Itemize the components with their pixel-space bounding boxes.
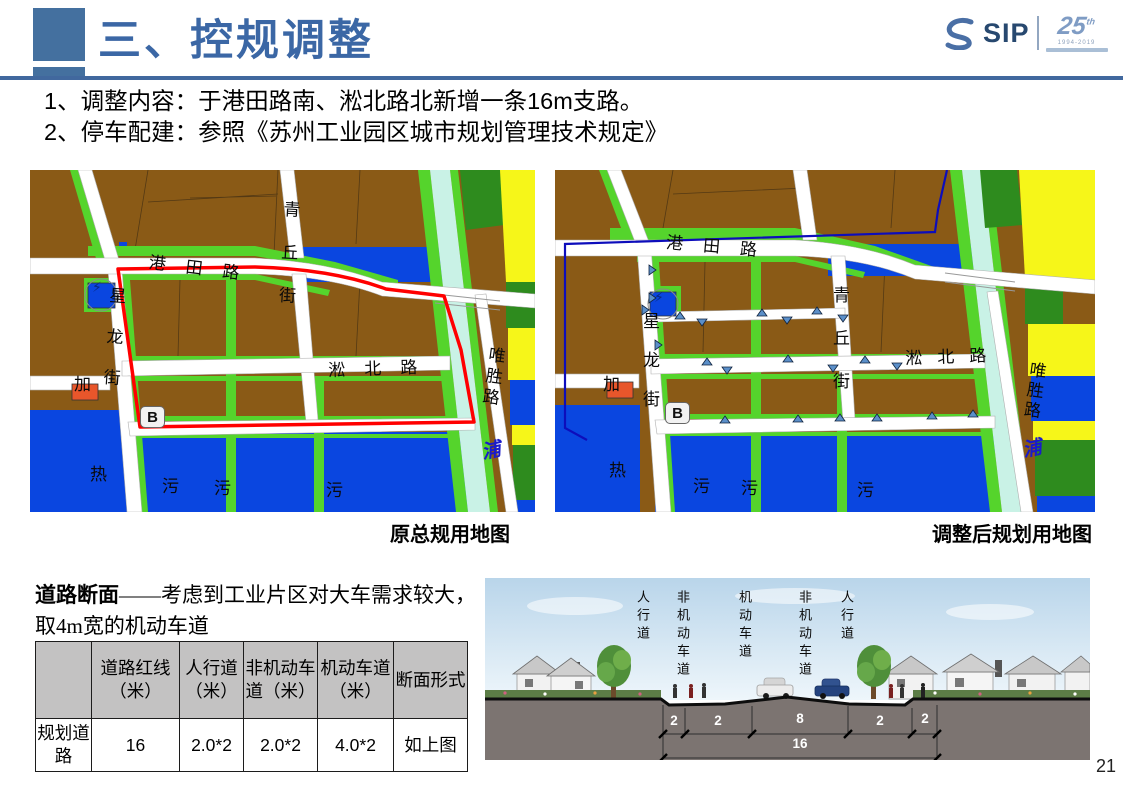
header-divider [0,76,1123,80]
table-row: 规划道路 16 2.0*2 2.0*2 4.0*2 如上图 [36,719,468,772]
anniversary-number: 25 [1056,12,1088,40]
header-sectionform: 断面形式 [394,642,468,719]
road-section-heading: 道路断面——考虑到工业片区对大车需求较大，取4m宽的机动车道 [35,580,487,643]
cell-bikelane: 2.0*2 [244,719,318,772]
logo-divider [1037,16,1039,50]
bullet-1: 1、调整内容：于港田路南、淞北路北新增一条16m支路。 [44,86,668,117]
substation-bolt-icon: ⚡ [654,290,664,304]
area-label-wu-2: 污 [214,480,231,497]
area-label-wu-3: 污 [326,482,343,499]
lane-label-bike-left: 非机动车道 [673,590,692,680]
table-header-row: 道路红线（米） 人行道（米） 非机动车道（米） 机动车道（米） 断面形式 [36,642,468,719]
road-label-qingqiu: 青丘街 [831,286,848,415]
lane-label-sidewalk-left: 人行道 [633,590,652,644]
block-badge-b: B [140,406,165,428]
cell-roadname: 规划道路 [36,719,92,772]
ground [485,697,1090,760]
block-badge-b: B [665,402,690,424]
road-label-xinglong: 星龙街 [641,312,658,429]
lane-label-bike-right: 非机动车道 [795,590,814,680]
area-label-jia: 加 [74,376,91,393]
dim-sidewalk-right: 2 [921,711,929,726]
anniversary-suffix: th [1086,17,1096,27]
logo-tagline-bar [1046,48,1108,52]
area-label-wu-1: 污 [162,478,179,495]
dim-motor: 8 [796,711,804,726]
area-label-wu-3: 污 [857,482,874,499]
sip-logo: SIP 25th 1994-2019 [942,14,1108,52]
river-label-pu: 浦 [1021,438,1044,461]
road-label-songbei: 淞北路 [905,347,1002,367]
page-title: 三、控规调整 [98,6,374,68]
sip-logo-text: SIP [983,18,1030,49]
adjusted-landuse-map: 港田路 星龙街 青丘街 淞北路 唯胜路 加 B 热 污 污 污 浦 ⚡ [555,170,1095,512]
area-label-re: 热 [609,462,626,479]
dim-bike-left: 2 [714,713,722,728]
dim-bike-right: 2 [876,713,884,728]
cell-motorlane: 4.0*2 [318,719,394,772]
header-bikelane: 非机动车道（米） [244,642,318,719]
header-motorlane: 机动车道（米） [318,642,394,719]
road-cross-section-image: 人行道 非机动车道 机动车道 非机动车道 人行道 2 2 8 2 2 16 [485,578,1090,760]
anniversary-years: 1994-2019 [1058,40,1096,46]
left-map-caption: 原总规用地图 [30,518,510,547]
lane-label-motor: 机动车道 [735,590,754,662]
bullet-2: 2、停车配建：参照《苏州工业园区城市规划管理技术规定》 [44,117,668,148]
anniversary-mark: 25th 1994-2019 [1046,14,1108,52]
area-label-re: 热 [90,466,107,483]
lane-label-sidewalk-right: 人行道 [837,590,856,644]
dim-total: 16 [792,736,807,751]
area-label-wu-1: 污 [693,478,710,495]
area-label-jia: 加 [603,376,620,393]
cell-sidewalk: 2.0*2 [180,719,244,772]
page-number: 21 [1078,756,1116,777]
bullet-list: 1、调整内容：于港田路南、淞北路北新增一条16m支路。 2、停车配建：参照《苏州… [44,86,668,149]
header-redline: 道路红线（米） [92,642,180,719]
road-section-heading-bold: 道路断面 [35,584,119,607]
header-empty [36,642,92,719]
substation-bolt-icon: ⚡ [92,280,102,294]
river-label-pu: 浦 [480,440,503,463]
dim-sidewalk-left: 2 [670,713,678,728]
cell-sectionform: 如上图 [394,719,468,772]
road-label-songbei: 淞北路 [328,358,437,379]
header-sidewalk: 人行道（米） [180,642,244,719]
sip-swirl-icon [942,16,976,50]
original-landuse-map: 港田路 青丘街 星龙街 淞北路 唯胜路 加 B 热 污 污 污 浦 ⚡ [30,170,535,512]
road-spec-table: 道路红线（米） 人行道（米） 非机动车道（米） 机动车道（米） 断面形式 规划道… [35,641,468,772]
adjusted-landuse-map-graphic [555,170,1095,512]
cell-redline: 16 [92,719,180,772]
cross-section-graphic [485,578,1090,760]
area-label-wu-2: 污 [741,480,758,497]
title-accent-square [33,8,85,61]
right-map-caption: 调整后规划用地图 [555,518,1092,547]
